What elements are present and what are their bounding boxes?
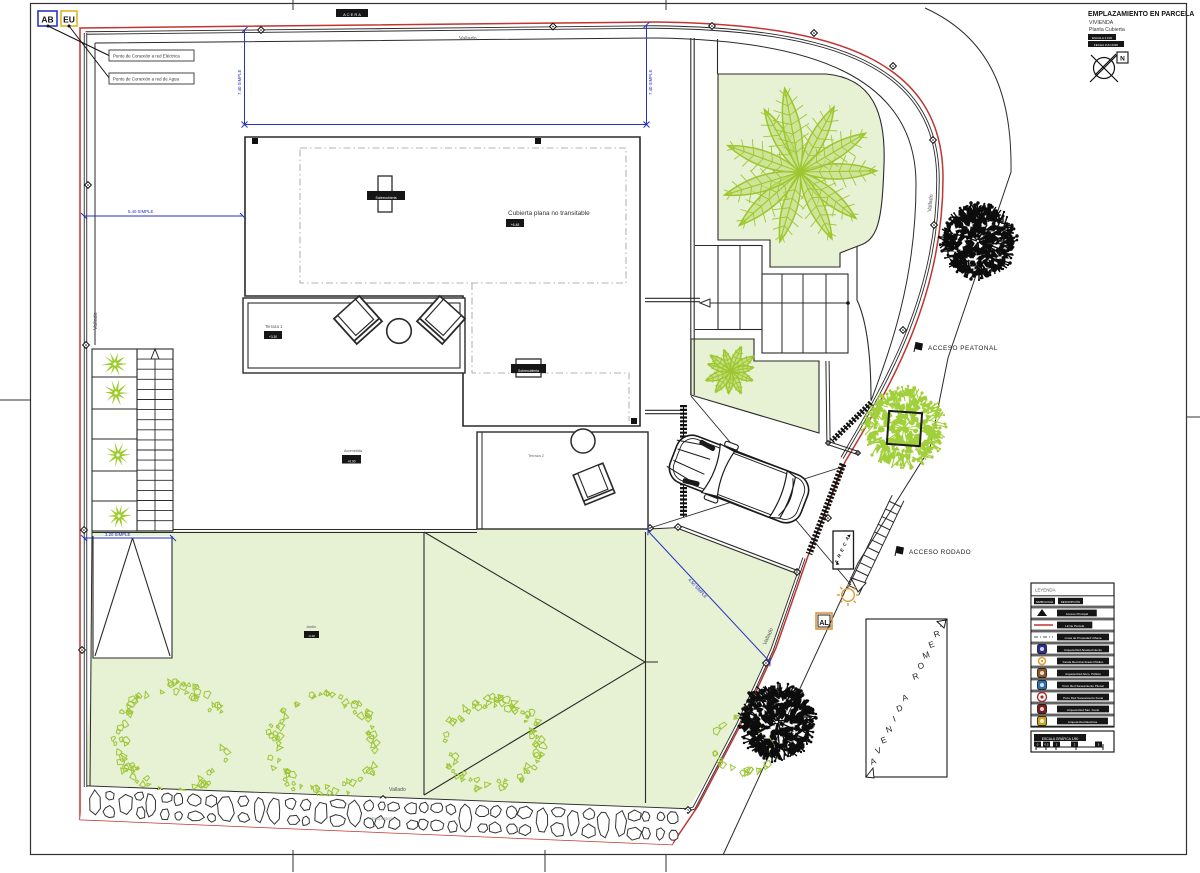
svg-text:DESCRIPCIÓN: DESCRIPCIÓN <box>1061 599 1080 604</box>
svg-text:Acometida: Acometida <box>344 449 363 453</box>
svg-text:Cubierta plana no transitable: Cubierta plana no transitable <box>508 210 590 217</box>
svg-text:VIVIENDA: VIVIENDA <box>1089 20 1114 26</box>
svg-text:SIMBOLOGÍA: SIMBOLOGÍA <box>1036 600 1054 604</box>
svg-text:-0.20: -0.20 <box>308 634 315 638</box>
svg-text:Arqueta Red Abastecimiento: Arqueta Red Abastecimiento <box>1064 648 1102 652</box>
svg-text:ACCESO RODADO: ACCESO RODADO <box>909 549 971 556</box>
svg-text:Vallado: Vallado <box>459 36 477 42</box>
svg-text:Vallado: Vallado <box>93 312 99 330</box>
svg-text:Sobrecubierta: Sobrecubierta <box>518 369 539 373</box>
svg-text:Punto de Conexión a red de Agu: Punto de Conexión a red de Agua <box>113 77 179 82</box>
svg-text:7.40 SIMPLE: 7.40 SIMPLE <box>237 70 242 95</box>
svg-text:+3.30: +3.30 <box>269 335 277 339</box>
svg-text:EU: EU <box>63 15 75 25</box>
svg-text:7.40 SIMPLE: 7.40 SIMPLE <box>648 70 653 95</box>
svg-text:Terraza 1: Terraza 1 <box>265 324 283 329</box>
svg-text:Arqueta Red Eléctrica: Arqueta Red Eléctrica <box>1068 720 1098 724</box>
svg-text:LEYENDA: LEYENDA <box>1035 588 1056 593</box>
svg-text:ESCALA GRÁFICA 1/50: ESCALA GRÁFICA 1/50 <box>1042 737 1079 741</box>
svg-text:Línea de Propiedad Urbana: Línea de Propiedad Urbana <box>1065 636 1102 640</box>
svg-text:Terraza 2: Terraza 2 <box>528 454 544 458</box>
svg-text:Vallado: Vallado <box>389 787 406 793</box>
svg-text:ESCALA 1:100: ESCALA 1:100 <box>1092 36 1112 40</box>
svg-text:Pozo Red Saneamiento Fecal: Pozo Red Saneamiento Fecal <box>1063 696 1103 700</box>
svg-text:Sobrecubierta: Sobrecubierta <box>375 196 396 200</box>
svg-text:3.20 SIMPLE: 3.20 SIMPLE <box>105 532 130 537</box>
svg-text:Planta Cubierta: Planta Cubierta <box>1089 27 1125 33</box>
svg-text:AB: AB <box>41 15 53 25</box>
svg-text:Farola Red Alumbrado Público: Farola Red Alumbrado Público <box>1063 660 1104 664</box>
svg-text:A C E R A: A C E R A <box>343 12 361 17</box>
svg-text:5.40 SIMPLE: 5.40 SIMPLE <box>128 209 153 214</box>
svg-text:EMPLAZAMIENTO EN PARCELA: EMPLAZAMIENTO EN PARCELA <box>1088 11 1194 18</box>
svg-text:Punto de Conexión a red Eléctr: Punto de Conexión a red Eléctrica <box>113 54 180 59</box>
svg-text:N: N <box>1120 56 1125 63</box>
svg-text:ACCESO PEATONAL: ACCESO PEATONAL <box>928 345 998 352</box>
svg-text:+0.00: +0.00 <box>347 459 355 463</box>
svg-text:Mampostería: Mampostería <box>370 816 395 821</box>
svg-text:Límite Parcela: Límite Parcela <box>1065 624 1085 628</box>
svg-text:Arqueta Red Alum. Público: Arqueta Red Alum. Público <box>1065 672 1101 676</box>
svg-text:+6.48: +6.48 <box>511 223 520 227</box>
svg-text:Jardín: Jardín <box>306 625 316 629</box>
svg-text:AL: AL <box>819 620 829 627</box>
svg-text:Pozo Red Saneamiento Pluvial: Pozo Red Saneamiento Pluvial <box>1062 684 1104 688</box>
svg-text:0,5: 0,5 <box>1045 742 1049 746</box>
svg-text:FECHA JUN 2020: FECHA JUN 2020 <box>1094 43 1119 47</box>
svg-text:Acceso Principal: Acceso Principal <box>1066 612 1089 616</box>
svg-text:Arqueta Red San. Fecal: Arqueta Red San. Fecal <box>1067 708 1099 712</box>
